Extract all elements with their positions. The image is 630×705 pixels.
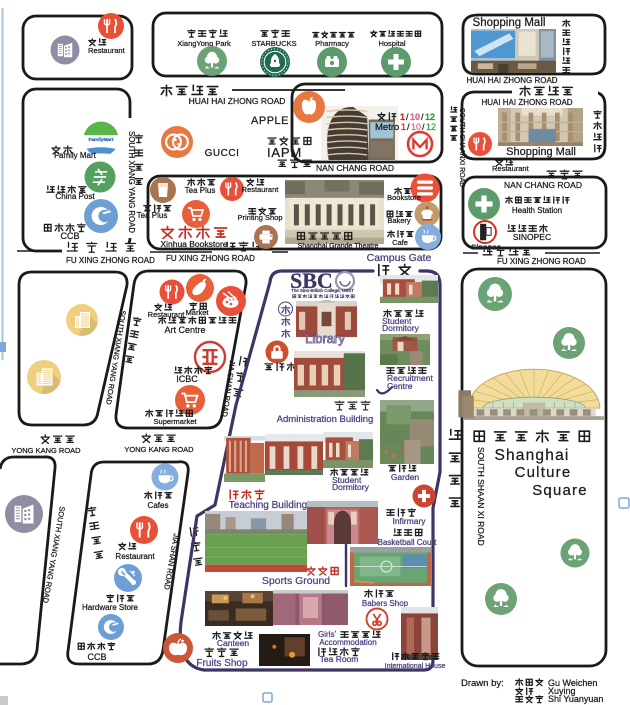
svg-text:10: 10 xyxy=(410,112,420,122)
svg-text:Garden: Garden xyxy=(391,472,420,482)
svg-text:Restaurant: Restaurant xyxy=(88,46,126,55)
svg-text:Tea Room: Tea Room xyxy=(320,654,359,664)
svg-text:Tea Plus: Tea Plus xyxy=(185,186,216,195)
svg-text:Bookstore: Bookstore xyxy=(387,193,421,202)
svg-text:HUAI HAI ZHONG ROAD: HUAI HAI ZHONG ROAD xyxy=(466,76,557,85)
svg-text:FU XING ZHONG ROAD: FU XING ZHONG ROAD xyxy=(497,257,586,266)
svg-text:Dormitory: Dormitory xyxy=(332,482,370,492)
svg-text:CCB: CCB xyxy=(60,231,79,241)
svg-text:STARBUCKS: STARBUCKS xyxy=(251,39,296,48)
svg-text:China Post: China Post xyxy=(55,192,95,201)
svg-text:APPLE: APPLE xyxy=(251,115,289,127)
svg-text:Xinhua Bookstore: Xinhua Bookstore xyxy=(160,239,227,249)
svg-text:SOUTH SHAANXI ROAD: SOUTH SHAANXI ROAD xyxy=(458,108,465,187)
svg-text:HUAI HAI ZHONG ROAD: HUAI HAI ZHONG ROAD xyxy=(481,98,572,107)
svg-text:International House: International House xyxy=(385,663,446,670)
svg-text:Family Mart: Family Mart xyxy=(54,151,97,160)
svg-text:Cafe: Cafe xyxy=(392,238,408,247)
svg-text:Administration Building: Administration Building xyxy=(277,414,374,425)
svg-text:FU XING ZHONG ROAD: FU XING ZHONG ROAD xyxy=(66,256,155,265)
svg-text:Cafes: Cafes xyxy=(148,501,169,510)
svg-text:Art Centre: Art Centre xyxy=(164,325,205,335)
svg-text:Square: Square xyxy=(532,482,588,499)
svg-text:1: 1 xyxy=(401,122,406,132)
svg-text:XiangYong Park: XiangYong Park xyxy=(177,39,231,48)
svg-text:Sinopec: Sinopec xyxy=(471,243,502,252)
svg-text:Canteen: Canteen xyxy=(217,638,249,648)
svg-text:Printing Shop: Printing Shop xyxy=(237,213,282,222)
svg-text:The Sino-British College, USST: The Sino-British College, USST xyxy=(291,288,354,293)
svg-text:12: 12 xyxy=(425,112,435,122)
svg-text:SINOPEC: SINOPEC xyxy=(513,232,551,242)
svg-text:Metro: Metro xyxy=(375,122,399,133)
svg-text:IAPM: IAPM xyxy=(267,145,302,160)
svg-text:Sports Ground: Sports Ground xyxy=(262,575,330,587)
svg-text:Shanghai: Shanghai xyxy=(494,447,569,464)
svg-text:Basketball Court: Basketball Court xyxy=(378,538,437,547)
svg-text:NAN CHANG ROAD: NAN CHANG ROAD xyxy=(504,180,582,190)
svg-text:Health Station: Health Station xyxy=(512,206,562,215)
svg-text:NAN CHANG ROAD: NAN CHANG ROAD xyxy=(316,163,394,173)
svg-text:HUAI HAI ZHONG ROAD: HUAI HAI ZHONG ROAD xyxy=(189,96,286,106)
svg-text:Accommodation: Accommodation xyxy=(319,638,376,647)
svg-text:Bakery: Bakery xyxy=(387,216,411,225)
svg-text:Shopping Mall: Shopping Mall xyxy=(473,17,546,29)
svg-text:Restaurant: Restaurant xyxy=(242,185,280,194)
svg-text:1: 1 xyxy=(400,112,405,122)
svg-text:Teaching Building: Teaching Building xyxy=(229,500,307,511)
svg-text:ICBC: ICBC xyxy=(176,374,198,384)
svg-text:Pharmacy: Pharmacy xyxy=(315,39,349,48)
svg-text:Shi Yuanyuan: Shi Yuanyuan xyxy=(548,694,603,704)
svg-text:Hardware Store: Hardware Store xyxy=(82,603,139,612)
svg-text:10: 10 xyxy=(411,122,421,132)
svg-text:Campus Gate: Campus Gate xyxy=(367,252,432,264)
svg-text:FamilyMart: FamilyMart xyxy=(89,137,114,143)
svg-text:Babers Shop: Babers Shop xyxy=(362,599,409,608)
svg-text:FU XING ZHONG ROAD: FU XING ZHONG ROAD xyxy=(166,254,255,263)
svg-text:YONG KANG ROAD: YONG KANG ROAD xyxy=(11,446,81,455)
svg-text:CCB: CCB xyxy=(87,652,106,662)
svg-text:SOUTH XIANG YANG ROAD: SOUTH XIANG YANG ROAD xyxy=(127,131,136,233)
svg-text:Fruits Shop: Fruits Shop xyxy=(196,658,248,669)
svg-text:Infirmary: Infirmary xyxy=(392,516,426,526)
svg-text:GUCCI: GUCCI xyxy=(205,148,240,159)
svg-text:Shopping Mall: Shopping Mall xyxy=(506,146,576,158)
svg-text:Dormitory: Dormitory xyxy=(382,323,420,333)
svg-text:Tea Plus: Tea Plus xyxy=(137,211,168,220)
svg-text:Centre: Centre xyxy=(387,381,413,391)
svg-text:Shanghai Grande Theatre: Shanghai Grande Theatre xyxy=(298,243,379,250)
svg-text:Restaurant: Restaurant xyxy=(115,552,155,561)
svg-text:Culture: Culture xyxy=(515,464,572,481)
svg-text:Library: Library xyxy=(305,331,345,346)
svg-text:Drawn by:: Drawn by: xyxy=(461,678,504,689)
svg-text:SOUTH SHAAN XI ROAD: SOUTH SHAAN XI ROAD xyxy=(476,447,486,546)
svg-text:Hospital: Hospital xyxy=(378,39,405,48)
svg-text:YONG KANG ROAD: YONG KANG ROAD xyxy=(124,445,194,454)
svg-text:12: 12 xyxy=(426,122,436,132)
svg-text:Market: Market xyxy=(186,308,210,317)
svg-text:Supermarket: Supermarket xyxy=(154,417,198,426)
svg-text:Restaurant: Restaurant xyxy=(492,164,530,173)
